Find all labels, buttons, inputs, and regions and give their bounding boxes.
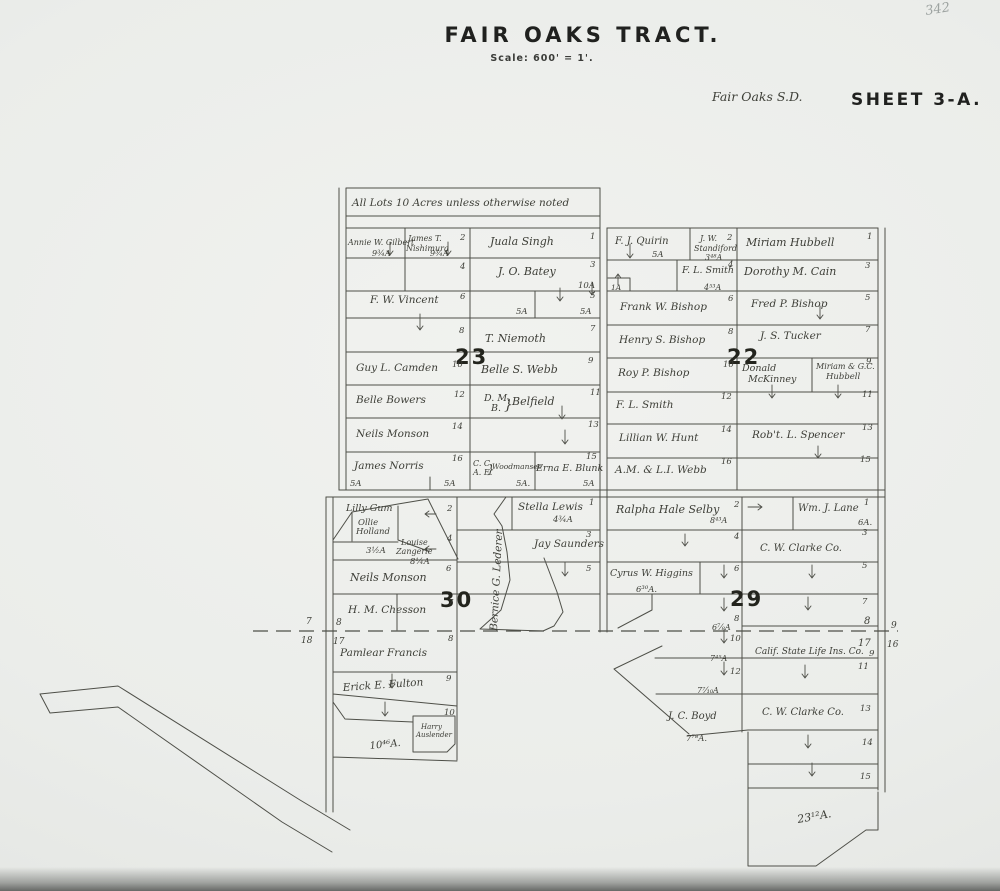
lot-number: 6 xyxy=(734,564,740,574)
lot-number: 6 xyxy=(460,292,466,302)
parcel-acres: 3½A xyxy=(366,545,386,556)
parcel-acres: 7⁴⁵A xyxy=(710,654,728,663)
parcel-owner: Zangerle xyxy=(395,547,433,556)
lot-number: 9 xyxy=(869,649,875,659)
parcel-owner: Dorothy M. Cain xyxy=(743,265,836,278)
parcel-owner: Donald xyxy=(741,363,776,374)
section-29: 29 xyxy=(730,587,763,611)
parcel-owner: Harry xyxy=(420,723,443,731)
parcel-owner: Cyrus W. Higgins xyxy=(610,568,693,579)
lot-number: 5 xyxy=(590,291,595,301)
nw-grid xyxy=(339,188,600,490)
lot-number: 8 xyxy=(728,327,734,337)
parcel-owner: Lillian W. Hunt xyxy=(618,432,699,444)
page-corner-number: 342 xyxy=(924,0,951,19)
lot-number: 1 xyxy=(590,232,595,242)
lot-number: 5 xyxy=(862,561,867,571)
lot-number: 1 xyxy=(864,498,869,508)
district-label: Fair Oaks S.D. xyxy=(711,89,803,104)
parcel-owner: Erna E. Blunk xyxy=(535,463,604,474)
lot-number: 6 xyxy=(728,294,734,304)
parcel-owner: Pamlear Francis xyxy=(339,647,428,659)
map-header: FAIR OAKS TRACT. Scale: 600' = 1'. Fair … xyxy=(351,0,982,209)
parcel-owner: Louise xyxy=(400,538,428,547)
parcel-acres: 5A xyxy=(516,307,528,317)
parcel-owner: A.M. & L.I. Webb xyxy=(614,464,707,476)
parcel-owner: J. S. Tucker xyxy=(758,330,822,342)
parcel-acres: 3⁴⁸A xyxy=(705,253,723,262)
parcel-owner: Belle S. Webb xyxy=(480,363,558,376)
parcel-acres: 23¹²A. xyxy=(795,807,832,826)
parcel-owner: F. L. Smith xyxy=(615,399,673,411)
parcel-owner: James Norris xyxy=(352,460,424,472)
parcel-owner: James T. xyxy=(406,234,442,243)
lot-number: 3 xyxy=(586,530,591,540)
edge-right-out-bottom: 16 xyxy=(887,640,899,650)
map-title: FAIR OAKS TRACT. xyxy=(444,23,721,47)
parcel-owner: Rob't. L. Spencer xyxy=(751,429,845,441)
parcel-owner: Stella Lewis xyxy=(518,501,583,513)
parcel-owner: Neils Monson xyxy=(355,428,429,440)
parcel-owner: Standiford xyxy=(694,244,737,253)
lot-number: 1 xyxy=(867,232,872,242)
lot-number: 7 xyxy=(590,324,596,334)
parcel-acres: 6A. xyxy=(858,518,872,528)
lot-number: 15 xyxy=(860,772,871,782)
lot-number: 4 xyxy=(733,532,739,542)
parcel-acres: 5A xyxy=(350,479,362,489)
lot-number: 15 xyxy=(586,452,597,462)
parcel-acres: 5A. xyxy=(516,479,530,489)
plat-map-svg: FAIR OAKS TRACT. Scale: 600' = 1'. Fair … xyxy=(0,0,1000,891)
parcel-owner: Roy P. Bishop xyxy=(617,367,690,379)
sheet-number: SHEET 3-A. xyxy=(851,90,982,110)
parcel-owner: Annie W. Gilbert xyxy=(347,238,415,247)
lot-number: 11 xyxy=(590,388,601,398)
lot-number: 7 xyxy=(448,598,454,608)
parcel-owner: Fred P. Bishop xyxy=(750,298,828,310)
parcel-owner: McKinney xyxy=(747,374,797,385)
parcel-owner: Miriam Hubbell xyxy=(745,236,835,249)
parcel-owner: T. Niemoth xyxy=(485,332,546,345)
lot-number: 4 xyxy=(727,260,733,270)
parcel-acres: 9¾A xyxy=(430,249,449,258)
parcel-owner: C. W. Clarke Co. xyxy=(762,707,844,718)
parcel-owner: Guy L. Camden xyxy=(356,362,438,374)
edge-left-in-top: 8 xyxy=(336,618,342,628)
edge-left-out-top: 7 xyxy=(306,617,312,627)
lot-number: 2 xyxy=(726,233,732,243)
lot-number: 5 xyxy=(586,564,591,574)
lot-number: 9 xyxy=(588,356,594,366)
parcel-acres: 8¼A xyxy=(410,556,430,567)
lot-number: 5 xyxy=(865,293,870,303)
lot-number: 13 xyxy=(862,423,873,433)
lot-number: 3 xyxy=(590,260,595,270)
lot-number: 8 xyxy=(448,634,454,644)
parcel-acres: 4⁵³A xyxy=(703,283,722,292)
edge-left-in-bottom: 17 xyxy=(333,637,345,647)
parcel-acres: 7⁷⁸A. xyxy=(686,734,707,744)
parcel-owner: Juala Singh xyxy=(488,235,554,248)
lot-number: 12 xyxy=(730,667,741,677)
lot-number: 10 xyxy=(452,360,463,370)
parcel-owner: F. L. Smith xyxy=(681,265,734,276)
lot-number: 10 xyxy=(723,360,734,370)
parcel-owner: Lilly Gum xyxy=(345,503,393,514)
parcel-acres: 5A xyxy=(580,307,592,317)
creek-band xyxy=(40,686,350,852)
lot-number: 9 xyxy=(866,357,872,367)
lot-number: 10 xyxy=(730,634,741,644)
parcel-acres: 6⅞A xyxy=(712,623,731,632)
parcel-owner: J. W. xyxy=(698,234,717,243)
map-scale: Scale: 600' = 1'. xyxy=(490,53,593,64)
lot-number: 7 xyxy=(865,325,871,335)
lot-number: 3 xyxy=(865,261,870,271)
lot-number: 3 xyxy=(862,528,867,538)
lot-number: 11 xyxy=(862,390,873,400)
lot-number: 12 xyxy=(721,392,732,402)
parcel-owner: B. xyxy=(490,403,501,414)
parcel-owner: F. W. Vincent xyxy=(369,294,439,306)
parcel-owner: Hubbell xyxy=(825,372,861,382)
parcel-owner: Frank W. Bishop xyxy=(619,301,707,313)
lot-number: 16 xyxy=(721,457,732,467)
parcel-acres: 10A xyxy=(578,281,595,291)
lot-number: 14 xyxy=(721,425,732,435)
lot-number: 2 xyxy=(459,233,465,243)
parcel-acres: 5A xyxy=(652,250,664,260)
lot-number: 9 xyxy=(446,674,452,684)
parcel-owner: Belle Bowers xyxy=(355,394,426,406)
lot-number: 6 xyxy=(446,564,452,574)
parcel-owner: Holland xyxy=(355,527,391,537)
parcel-owner: Henry S. Bishop xyxy=(618,334,705,346)
parcel-owner-rotated: Bernice G. Lederer xyxy=(488,528,505,632)
parcel-acres: 6³⁰A. xyxy=(636,585,657,595)
parcel-owner: H. M. Chesson xyxy=(347,604,426,616)
parcel-owner: C. W. Clarke Co. xyxy=(760,543,842,554)
lot-number: 12 xyxy=(454,390,465,400)
parcel-acres: 5A xyxy=(583,479,595,489)
parcel-acres: 9¾A xyxy=(372,249,391,258)
lot-number: 2 xyxy=(446,504,452,514)
parcel-owner: Auslender xyxy=(415,731,453,739)
section-30: 30 xyxy=(440,588,473,612)
parcel-acres: 1A xyxy=(611,283,622,292)
edge-right-out-top: 9 xyxy=(891,621,897,631)
parcel-owner: Jay Saunders xyxy=(532,538,605,550)
photo-edge-vignette xyxy=(0,867,1000,891)
lot-number: 8 xyxy=(459,326,465,336)
parcel-owner: Wm. J. Lane xyxy=(798,503,859,514)
acreage-note: All Lots 10 Acres unless otherwise noted xyxy=(351,197,570,209)
parcel-owner: Ralpha Hale Selby xyxy=(615,503,720,516)
edge-left-out-bottom: 18 xyxy=(301,636,313,646)
lot-number: 16 xyxy=(452,454,463,464)
parcel-owner: J. C. Boyd xyxy=(666,711,717,722)
lot-number: 1 xyxy=(589,498,594,508)
lot-number: 14 xyxy=(452,422,463,432)
lot-number: 4 xyxy=(459,262,465,272)
sw-block-labels: Lilly Gum Ollie Holland 3½A Louise Zange… xyxy=(339,498,605,752)
lot-number: 11 xyxy=(858,662,869,672)
parcel-owner: Belfield xyxy=(511,395,555,408)
parcel-acres: 5A xyxy=(444,479,456,489)
plat-map-scan: FAIR OAKS TRACT. Scale: 600' = 1'. Fair … xyxy=(0,0,1000,891)
parcel-owner: F. J. Quirin xyxy=(614,236,669,247)
parcel-owner: Calif. State Life Ins. Co. xyxy=(755,647,864,657)
lot-number: 7 xyxy=(862,597,868,607)
parcel-acres: 8⁴³A xyxy=(710,516,728,525)
lot-number: 2 xyxy=(733,500,739,510)
parcel-acres: 7⁷⁄₁₀A xyxy=(697,686,719,695)
parcel-owner: Erick E. Fulton xyxy=(341,676,424,694)
parcel-owner: Neils Monson xyxy=(349,571,427,584)
lot-number: 4 xyxy=(446,534,452,544)
map-linework xyxy=(40,188,898,866)
parcel-acres: 10⁴⁶A. xyxy=(369,738,401,752)
lot-number: 13 xyxy=(860,704,871,714)
lot-number: 8 xyxy=(734,614,740,624)
parcel-owner: J. O. Batey xyxy=(496,265,556,278)
lot-number: 14 xyxy=(862,738,873,748)
lot-number: 13 xyxy=(588,420,599,430)
lot-number: 10 xyxy=(444,708,455,718)
edge-right-in-top: 8 xyxy=(864,616,870,627)
parcel-acres: 4¾A xyxy=(552,514,573,525)
lot-number: 15 xyxy=(860,455,871,465)
